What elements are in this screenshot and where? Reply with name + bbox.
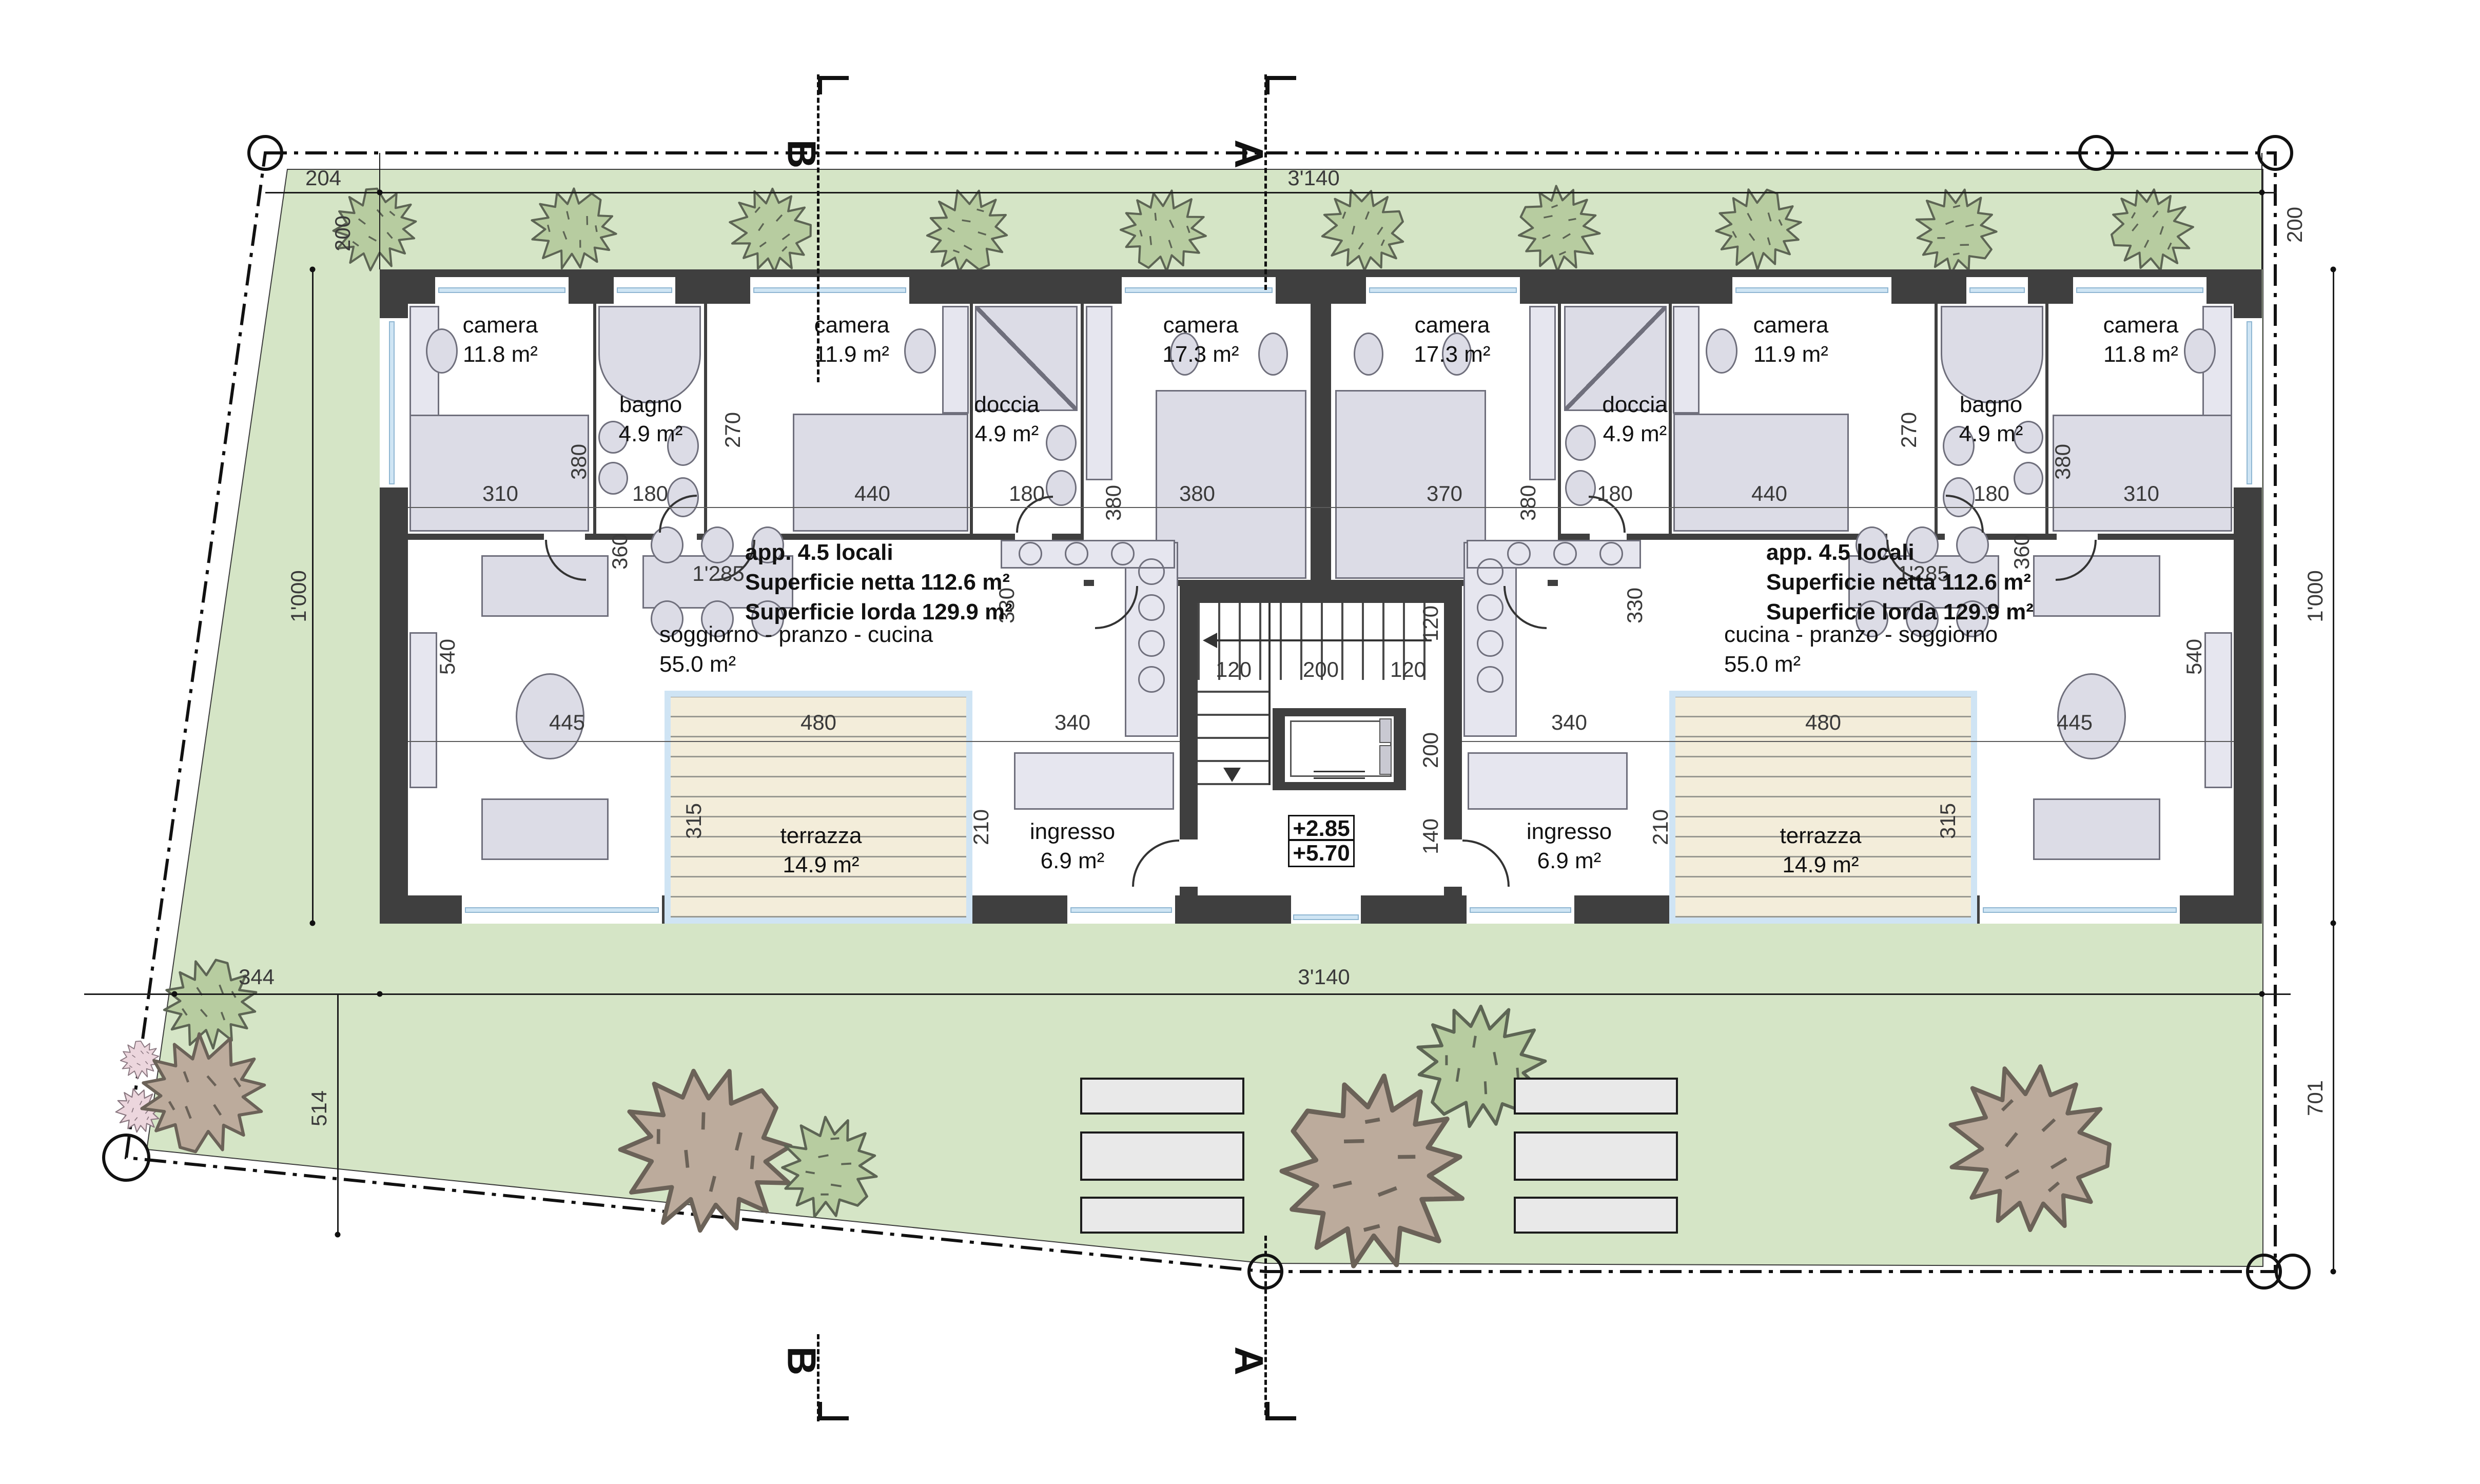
dim-line-right xyxy=(2333,269,2334,1272)
living-label-left: soggiorno - pranzo - cucina 55.0 m² xyxy=(659,620,933,679)
bed-double xyxy=(1156,390,1306,579)
room-name: bagno xyxy=(619,390,683,419)
room-name: camera xyxy=(814,310,890,340)
dim-band-right: 200 xyxy=(2282,207,2307,243)
door-opening xyxy=(2057,534,2098,540)
room-name: ingresso xyxy=(1030,817,1115,846)
dim-180: 180 xyxy=(1597,481,1633,506)
dim-340: 340 xyxy=(1055,710,1090,735)
dim-line-left xyxy=(312,269,314,924)
chair xyxy=(904,328,936,374)
dim-210-v: 210 xyxy=(969,809,993,845)
entry-closet xyxy=(1468,752,1628,810)
room-area: 11.9 m² xyxy=(1753,340,1829,369)
window-glass xyxy=(1983,907,2177,913)
kitchen-hob xyxy=(1477,594,1503,621)
kitchen-hob xyxy=(1477,630,1503,657)
garden-planter xyxy=(1514,1197,1678,1234)
dim-380-v: 380 xyxy=(567,444,591,480)
garden-planter xyxy=(1514,1078,1678,1115)
room-label: camera 11.8 m² xyxy=(463,310,538,369)
section-bracket xyxy=(818,1402,849,1420)
room-area: 4.9 m² xyxy=(619,419,683,448)
bed xyxy=(793,414,968,532)
apartment-net-area: Superficie netta 112.6 m² xyxy=(745,568,1012,597)
room-label: camera 11.9 m² xyxy=(814,310,890,369)
room-name: doccia xyxy=(1602,390,1667,419)
room-area: 17.3 m² xyxy=(1414,340,1490,369)
dim-chain-living-right xyxy=(1462,741,2234,742)
dim-chain-rooms xyxy=(408,507,2234,508)
room-label: camera 17.3 m² xyxy=(1414,310,1490,369)
room-label: bagno 4.9 m² xyxy=(619,390,683,448)
sideboard xyxy=(2204,632,2232,788)
bed xyxy=(1673,414,1849,532)
dim-120-v: 120 xyxy=(1418,606,1443,641)
room-area: 11.8 m² xyxy=(463,340,538,369)
section-label-b: B xyxy=(778,140,825,168)
ingresso-label-right: ingresso 6.9 m² xyxy=(1527,817,1612,875)
dim-tick xyxy=(377,190,383,196)
dim-380-v: 380 xyxy=(1516,485,1540,521)
kitchen-sink xyxy=(1477,666,1503,693)
room-area: 4.9 m² xyxy=(1602,419,1667,448)
dim-315-v: 315 xyxy=(1936,803,1960,839)
dim-310: 310 xyxy=(2123,481,2159,506)
apartment-title: app. 4.5 locali xyxy=(1766,538,2034,568)
room-area: 14.9 m² xyxy=(780,850,862,880)
dim-480: 480 xyxy=(1805,710,1841,735)
kitchen-hob xyxy=(1138,594,1165,621)
dim-180: 180 xyxy=(1974,481,2009,506)
terrace-label-right: terrazza 14.9 m² xyxy=(1780,821,1862,880)
room-area: 4.9 m² xyxy=(1959,419,2023,448)
sideboard xyxy=(409,632,437,788)
dim-line-top xyxy=(265,192,2277,193)
bathtub xyxy=(598,306,701,403)
wardrobe xyxy=(1086,306,1112,480)
entry-closet xyxy=(1014,752,1174,810)
window-glass xyxy=(438,287,565,293)
wardrobe xyxy=(1529,306,1556,480)
dim-340: 340 xyxy=(1551,710,1587,735)
dim-tick xyxy=(2331,267,2336,272)
kitchen-sink xyxy=(1507,542,1531,565)
room-label: doccia 4.9 m² xyxy=(974,390,1039,448)
window-glass xyxy=(1070,907,1172,913)
room-name: terrazza xyxy=(1780,821,1862,850)
door-opening xyxy=(1590,534,1627,540)
living-label-right: cucina - pranzo - soggiorno 55.0 m² xyxy=(1724,620,1998,679)
window-glass xyxy=(1125,287,1273,293)
dim-1285: 1'285 xyxy=(692,561,744,586)
stairs-down-arrow xyxy=(1223,768,1241,782)
floor-plan-canvas: B A B A 204 3'140 200 200 1'000 1'000 34… xyxy=(0,0,2480,1484)
apartment-net-area: Superficie netta 112.6 m² xyxy=(1766,568,2034,597)
dim-tick xyxy=(310,267,316,272)
dim-380-v: 380 xyxy=(1101,485,1126,521)
dim-370: 370 xyxy=(1427,481,1462,506)
dim-120: 120 xyxy=(1390,657,1426,682)
dim-tick xyxy=(2331,921,2336,926)
apartment-entry-right xyxy=(1444,839,1462,887)
dim-445: 445 xyxy=(549,710,585,735)
room-area: 4.9 m² xyxy=(974,419,1039,448)
bed xyxy=(2053,415,2232,532)
dim-width-top: 3'140 xyxy=(1287,166,1339,190)
room-label: bagno 4.9 m² xyxy=(1959,390,2023,448)
window-glass xyxy=(1735,287,1888,293)
ingresso-label-left: ingresso 6.9 m² xyxy=(1030,817,1115,875)
dim-440: 440 xyxy=(854,481,890,506)
dim-tick xyxy=(172,991,178,997)
room-name: camera xyxy=(1753,310,1829,340)
dim-line-514 xyxy=(337,993,339,1236)
dim-band-left: 200 xyxy=(330,216,355,251)
chair xyxy=(426,328,458,374)
dim-180: 180 xyxy=(632,481,668,506)
dim-330-v: 330 xyxy=(1623,588,1647,623)
section-label-a: A xyxy=(1226,140,1273,168)
dim-height-left: 1'000 xyxy=(286,570,311,622)
dim-120: 120 xyxy=(1216,657,1252,682)
garden-planter xyxy=(1514,1131,1678,1181)
apartment-title: app. 4.5 locali xyxy=(745,538,1012,568)
dim-top-offset: 204 xyxy=(305,166,341,190)
wardrobe xyxy=(1673,306,1700,414)
elevator-equipment xyxy=(1379,745,1392,775)
dim-200-v: 200 xyxy=(1418,732,1443,768)
dim-width-bottom: 3'140 xyxy=(1298,965,1350,989)
dim-chain-living-left xyxy=(408,741,1180,742)
window-glass xyxy=(1470,907,1571,913)
room-area: 14.9 m² xyxy=(1780,850,1862,880)
window-glass xyxy=(2247,321,2252,484)
kitchen-hob xyxy=(1599,542,1623,565)
dim-540-v: 540 xyxy=(2182,639,2206,675)
chair xyxy=(1354,333,1383,376)
dim-380: 380 xyxy=(1179,481,1215,506)
bed xyxy=(409,415,589,532)
room-label: camera 11.9 m² xyxy=(1753,310,1829,369)
level-marker-upper: +2.85 xyxy=(1288,815,1355,841)
chair xyxy=(1706,328,1737,374)
chair xyxy=(2184,328,2216,374)
dim-tick xyxy=(335,1232,341,1238)
elevator-door xyxy=(1314,771,1365,779)
elevator-cab xyxy=(1290,720,1392,777)
kitchen-hob xyxy=(1019,542,1042,565)
sofa xyxy=(2033,555,2160,617)
dim-540-v: 540 xyxy=(435,639,460,675)
door-opening xyxy=(1015,534,1052,540)
room-name: camera xyxy=(1414,310,1490,340)
sink xyxy=(2014,462,2043,495)
dim-270-v: 270 xyxy=(1897,412,1921,448)
dim-200: 200 xyxy=(1303,657,1339,682)
dim-tick xyxy=(377,991,383,997)
sink xyxy=(1565,425,1596,461)
window-glass xyxy=(1369,287,1517,293)
apartment-info-right: app. 4.5 locali Superficie netta 112.6 m… xyxy=(1766,538,2034,627)
dim-480: 480 xyxy=(800,710,836,735)
dim-360-v: 360 xyxy=(608,534,632,570)
dim-right-lower: 701 xyxy=(2303,1080,2328,1116)
garden-planter xyxy=(1080,1197,1244,1234)
dim-180: 180 xyxy=(1009,481,1045,506)
dim-310: 310 xyxy=(482,481,518,506)
dim-tick xyxy=(2331,1269,2336,1275)
section-bracket xyxy=(818,76,849,94)
dim-210-v: 210 xyxy=(1648,809,1673,845)
wardrobe xyxy=(942,306,969,414)
sofa xyxy=(481,555,609,617)
sofa xyxy=(481,798,609,860)
apartment-entry-left xyxy=(1180,839,1198,887)
section-line-a-top xyxy=(1264,74,1267,290)
window-glass xyxy=(2076,287,2203,293)
room-name: bagno xyxy=(1959,390,2023,419)
section-bracket xyxy=(1265,1402,1296,1420)
room-name: doccia xyxy=(974,390,1039,419)
stairs-arrow-line xyxy=(1211,639,1432,641)
room-area: 11.8 m² xyxy=(2103,340,2179,369)
kitchen-hob xyxy=(1065,542,1088,565)
room-area: 55.0 m² xyxy=(1724,650,1998,679)
dim-140-v: 140 xyxy=(1418,818,1443,854)
kitchen-hob xyxy=(1138,558,1165,585)
room-area: 11.9 m² xyxy=(814,340,890,369)
dim-315-v: 315 xyxy=(681,803,706,839)
room-label: camera 17.3 m² xyxy=(1162,310,1239,369)
sofa xyxy=(2033,798,2160,860)
section-line-a-bottom xyxy=(1264,1236,1267,1415)
dim-tick xyxy=(310,921,316,926)
room-name: terrazza xyxy=(780,821,862,850)
room-name: cucina - pranzo - soggiorno xyxy=(1724,620,1998,650)
section-bracket xyxy=(1265,76,1296,94)
window-glass xyxy=(753,287,906,293)
dim-tick xyxy=(2259,190,2265,196)
kitchen-hob xyxy=(1553,542,1577,565)
level-marker-roof: +5.70 xyxy=(1288,839,1355,867)
stairs-divider xyxy=(1268,603,1271,785)
room-name: camera xyxy=(463,310,538,340)
dim-440: 440 xyxy=(1751,481,1787,506)
room-area: 55.0 m² xyxy=(659,650,933,679)
sink xyxy=(598,462,628,495)
garden-planter xyxy=(1080,1078,1244,1115)
section-label-a: A xyxy=(1226,1346,1273,1375)
room-area: 6.9 m² xyxy=(1527,846,1612,875)
dim-bottom-offset-h: 514 xyxy=(307,1090,331,1126)
kitchen-sink xyxy=(1111,542,1135,565)
chair xyxy=(1258,333,1288,376)
bathtub xyxy=(1941,306,2043,403)
dim-270-v: 270 xyxy=(720,412,745,448)
kitchen-hob xyxy=(1477,558,1503,585)
terrace-label-left: terrazza 14.9 m² xyxy=(780,821,862,880)
window-glass xyxy=(465,907,659,913)
apartment-info-left: app. 4.5 locali Superficie netta 112.6 m… xyxy=(745,538,1012,627)
garden-planter xyxy=(1080,1131,1244,1181)
room-area: 6.9 m² xyxy=(1030,846,1115,875)
sink xyxy=(1046,425,1077,461)
room-name: soggiorno - pranzo - cucina xyxy=(659,620,933,650)
extension-line xyxy=(379,153,380,269)
extension-line xyxy=(2261,153,2262,269)
room-name: camera xyxy=(2103,310,2179,340)
entrance-door-glass xyxy=(1293,914,1359,920)
dim-tick xyxy=(2259,991,2265,997)
door-opening xyxy=(544,534,585,540)
dim-bottom-offset-w: 344 xyxy=(239,965,275,989)
dim-445: 445 xyxy=(2057,710,2093,735)
section-label-b: B xyxy=(778,1346,825,1375)
dim-380-v: 380 xyxy=(2051,444,2075,480)
room-name: camera xyxy=(1162,310,1239,340)
window-glass xyxy=(389,321,395,484)
dim-height-right: 1'000 xyxy=(2303,570,2328,622)
window-glass xyxy=(617,287,672,293)
room-area: 17.3 m² xyxy=(1162,340,1239,369)
room-label: doccia 4.9 m² xyxy=(1602,390,1667,448)
room-label: camera 11.8 m² xyxy=(2103,310,2179,369)
window-glass xyxy=(1969,287,2025,293)
room-name: ingresso xyxy=(1527,817,1612,846)
dim-line-bottom xyxy=(84,993,2291,995)
kitchen-sink xyxy=(1138,666,1165,693)
kitchen-hob xyxy=(1138,630,1165,657)
elevator-equipment xyxy=(1379,718,1392,743)
